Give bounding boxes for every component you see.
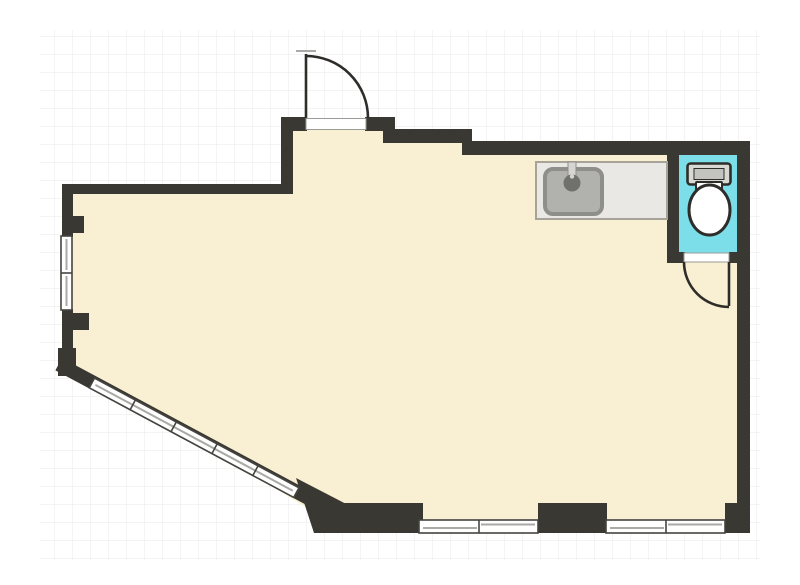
wall-top-step [383, 129, 472, 143]
wall-pier-left-top [62, 216, 84, 233]
faucet-notch [570, 174, 574, 178]
bottom-wall-window-left [419, 520, 538, 533]
bottom-wall-window-right [606, 520, 725, 533]
toilet-room-wall-bottom-left [667, 252, 685, 263]
kitchen-counter [536, 162, 667, 219]
wall-pier-left-bottom [62, 313, 89, 330]
toilet-room-wall-bottom-right [729, 252, 750, 263]
wall-entry-bump-top-left [281, 117, 307, 131]
wall-right [737, 141, 750, 533]
faucet-stem [568, 162, 576, 176]
floor-plan-image [0, 0, 800, 585]
wall-entry-bump-top-right [365, 117, 395, 131]
door-threshold [684, 253, 729, 262]
wall-bottom-middle-pier [538, 503, 607, 533]
door-threshold [306, 119, 366, 130]
wall-top-right [462, 141, 750, 155]
toilet-tank-lid [694, 169, 724, 180]
floor-plan-canvas [0, 0, 800, 585]
wall-top-left [62, 184, 292, 194]
wall-bottom-left-segment [331, 503, 423, 533]
wall-bottom-right-corner [725, 503, 750, 533]
left-wall-window [61, 236, 72, 310]
toilet-bowl [689, 185, 730, 235]
toilet-room-wall-left [667, 152, 679, 263]
